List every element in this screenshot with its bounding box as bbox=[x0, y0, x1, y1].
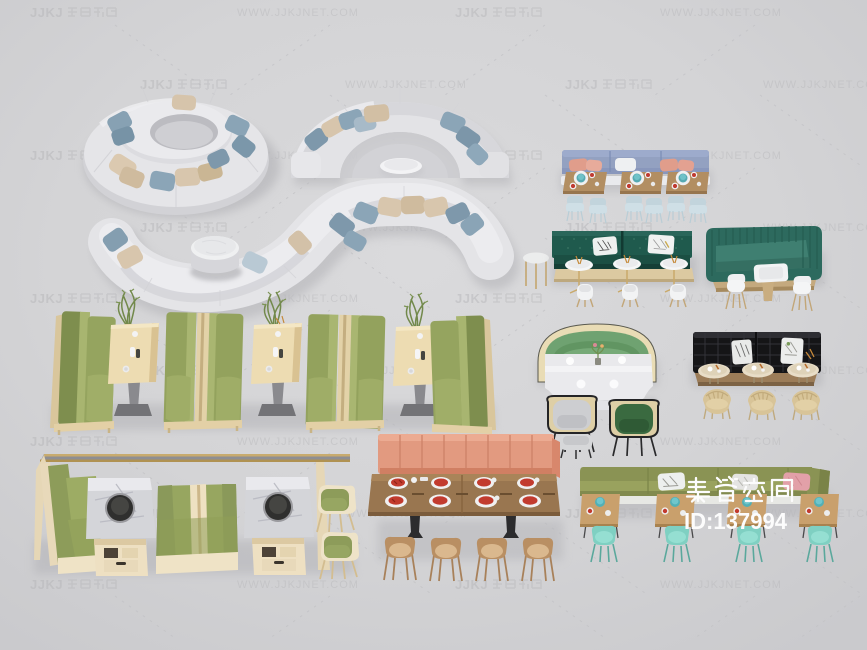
svg-text:JJKJ: JJKJ bbox=[30, 291, 63, 306]
svg-text:JJKJ: JJKJ bbox=[140, 220, 173, 235]
svg-text:JJKJ: JJKJ bbox=[30, 434, 63, 449]
svg-text:WWW.JJKJNET.COM: WWW.JJKJNET.COM bbox=[763, 79, 867, 91]
svg-text:WWW.JJKJNET.COM: WWW.JJKJNET.COM bbox=[237, 7, 359, 19]
svg-text:JJKJ: JJKJ bbox=[565, 77, 598, 92]
svg-text:WWW.JJKJNET.COM: WWW.JJKJNET.COM bbox=[345, 79, 467, 91]
svg-text:WWW.JJKJNET.COM: WWW.JJKJNET.COM bbox=[660, 436, 782, 448]
svg-text:JJKJ: JJKJ bbox=[30, 577, 63, 592]
svg-text:WWW.JJKJNET.COM: WWW.JJKJNET.COM bbox=[237, 579, 359, 591]
svg-text:ID:137994: ID:137994 bbox=[684, 508, 787, 534]
svg-text:JJKJ: JJKJ bbox=[455, 577, 488, 592]
svg-text:WWW.JJKJNET.COM: WWW.JJKJNET.COM bbox=[237, 436, 359, 448]
svg-text:JJKJ: JJKJ bbox=[455, 291, 488, 306]
svg-text:WWW.JJKJNET.COM: WWW.JJKJNET.COM bbox=[660, 7, 782, 19]
svg-text:JJKJ: JJKJ bbox=[30, 148, 63, 163]
svg-text:JJKJ: JJKJ bbox=[30, 5, 63, 20]
svg-text:JJKJ: JJKJ bbox=[455, 5, 488, 20]
svg-text:JJKJ: JJKJ bbox=[140, 77, 173, 92]
svg-text:WWW.JJKJNET.COM: WWW.JJKJNET.COM bbox=[660, 579, 782, 591]
